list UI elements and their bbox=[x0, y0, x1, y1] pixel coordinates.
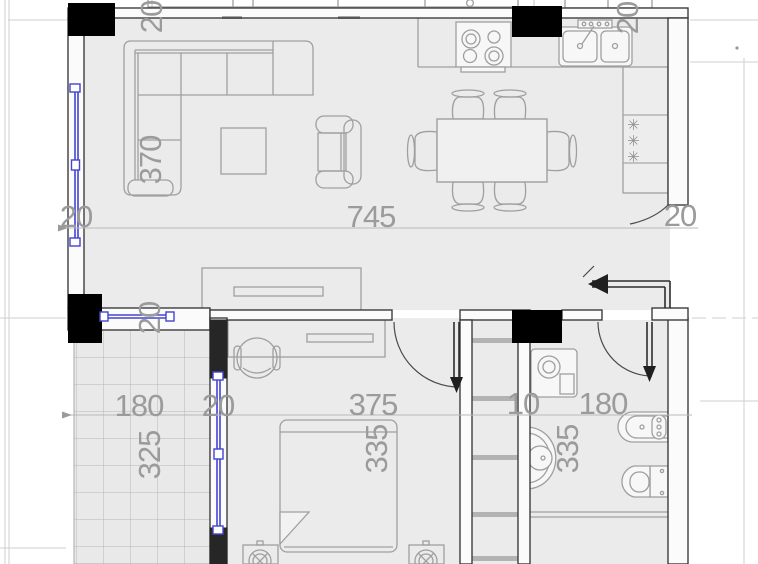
dimension-label-balcony-wall: 20 bbox=[202, 388, 235, 423]
dimension-label-shaft-width: 10 bbox=[507, 386, 540, 421]
cropped-upper-linework bbox=[148, 0, 652, 8]
dining-table bbox=[437, 119, 547, 182]
dimension-label-mid-wall: 20 bbox=[132, 301, 167, 334]
dimension-label-bathroom-depth: 335 bbox=[550, 425, 585, 474]
dimension-label-bathroom-width: 180 bbox=[579, 386, 628, 421]
shaft-floor bbox=[472, 320, 518, 564]
floor-plan-drawing: ✳✳✳ bbox=[0, 0, 758, 564]
dimension-label-bedroom-depth: 335 bbox=[359, 425, 394, 474]
dimension-label-bedroom-width: 375 bbox=[349, 387, 398, 422]
room-floors bbox=[74, 18, 670, 564]
dimension-label-living-depth: 370 bbox=[133, 135, 168, 184]
floor-plan-canvas: ✳✳✳ bbox=[0, 0, 758, 564]
dimension-label-top-wall-right: 20 bbox=[610, 1, 645, 34]
dimension-label-right-wall: 20 bbox=[664, 198, 697, 233]
stove bbox=[456, 22, 511, 72]
dimension-label-balcony-width: 180 bbox=[115, 388, 164, 423]
fridge-freezer-symbols: ✳✳✳ bbox=[627, 116, 640, 166]
dimension-label-living-width: 745 bbox=[347, 199, 396, 234]
freezer-snowflake-icon: ✳ bbox=[627, 148, 640, 166]
dimension-label-balcony-depth: 325 bbox=[132, 431, 167, 480]
toilet bbox=[622, 466, 668, 497]
bedroom-floor bbox=[227, 318, 460, 564]
dimension-label-top-wall-left: 20 bbox=[134, 0, 169, 33]
dimension-label-left-wall: 20 bbox=[60, 199, 93, 234]
